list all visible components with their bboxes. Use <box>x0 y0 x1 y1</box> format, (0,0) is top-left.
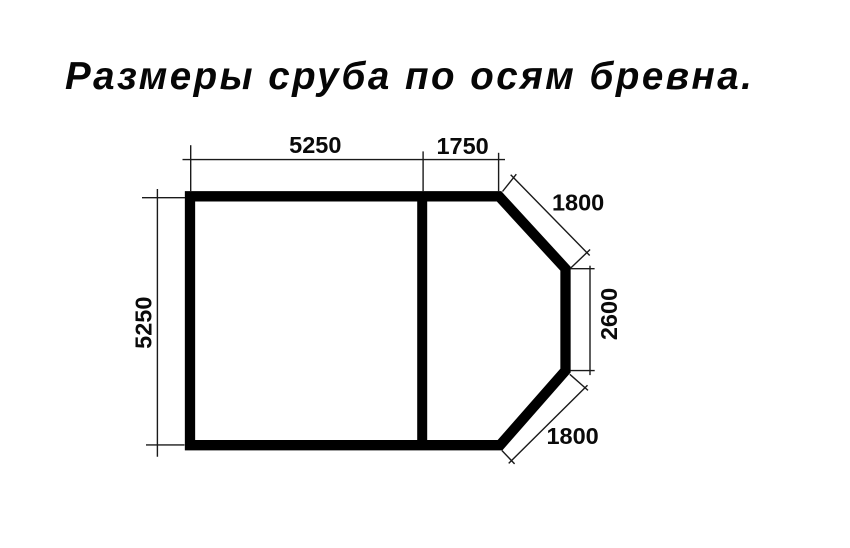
svg-text:1800: 1800 <box>546 423 598 449</box>
svg-text:Размеры сруба по осям бревна.: Размеры сруба по осям бревна. <box>65 55 754 98</box>
svg-text:2600: 2600 <box>596 288 622 340</box>
svg-text:1800: 1800 <box>552 190 604 216</box>
svg-text:5250: 5250 <box>131 297 157 349</box>
svg-text:1750: 1750 <box>436 133 488 159</box>
svg-text:5250: 5250 <box>289 132 341 158</box>
